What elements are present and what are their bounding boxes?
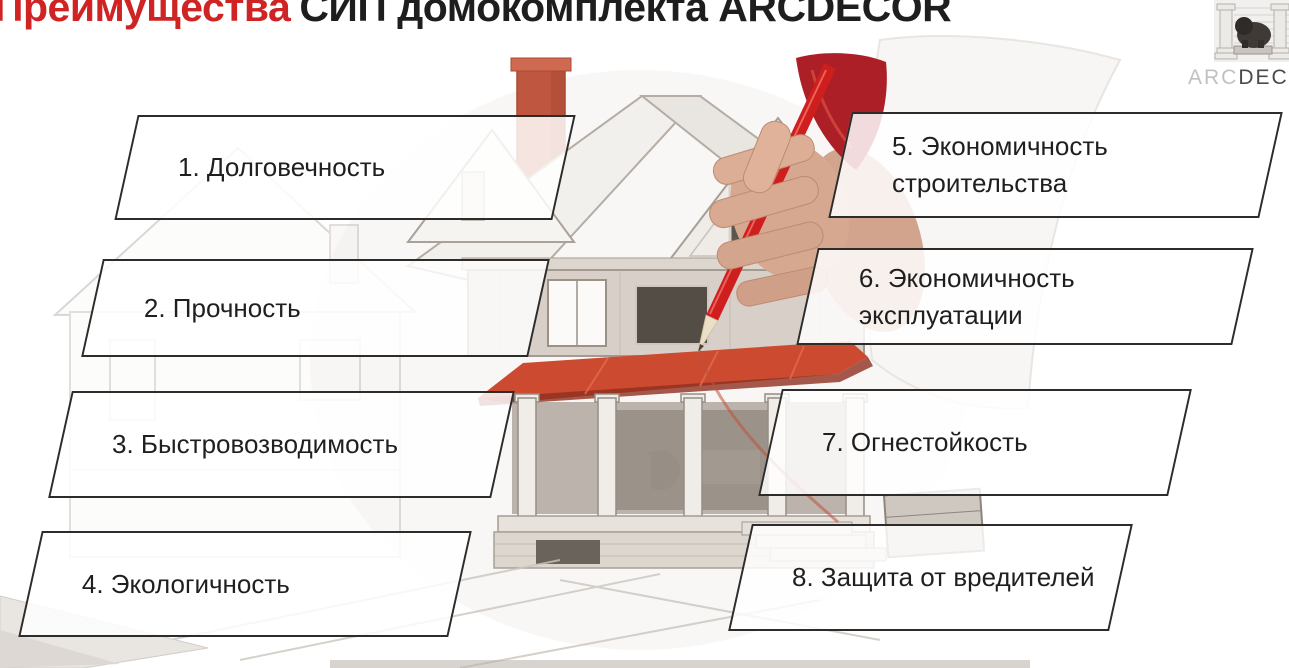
slide-title-highlight: Преимущества [0, 0, 290, 30]
advantage-label: 3. Быстровозводимость [62, 426, 398, 463]
advantage-box-5: 5. Экономичность строительства [828, 112, 1282, 218]
advantage-label: 2. Прочность [94, 290, 301, 327]
advantage-label: 8. Защита от вредителей [742, 559, 1095, 596]
advantage-box-1: 1. Долговечность [114, 115, 575, 220]
logo-text-decor: DECOR [1238, 66, 1289, 89]
advantage-box-8: 8. Защита от вредителей [728, 524, 1133, 631]
advantage-label: 6. Экономичность эксплуатации [809, 260, 1169, 334]
slide-title-rest: СИП домокомплекта ARCDECOR [299, 0, 951, 30]
logo-text-arc: ARC [1188, 66, 1238, 89]
advantage-box-4: 4. Экологичность [18, 531, 471, 637]
arcdecor-logo-icon [1186, 0, 1289, 66]
slide-title: ПреимуществаСИП домокомплекта ARCDECOR [0, 0, 951, 31]
advantage-box-2: 2. Прочность [81, 259, 550, 357]
advantage-label: 1. Долговечность [128, 149, 385, 186]
advantage-label: 7. Огнестойкость [772, 424, 1028, 461]
advantage-box-6: 6. Экономичность эксплуатации [796, 248, 1254, 345]
advantage-label: 4. Экологичность [32, 566, 290, 603]
arcdecor-logo-text: ARCDECOR [1188, 66, 1289, 90]
advantage-box-3: 3. Быстровозводимость [48, 391, 515, 498]
arcdecor-logo: ARCDECOR [1186, 0, 1289, 100]
advantage-label: 5. Экономичность строительства [842, 128, 1202, 202]
advantage-box-7: 7. Огнестойкость [758, 389, 1192, 496]
